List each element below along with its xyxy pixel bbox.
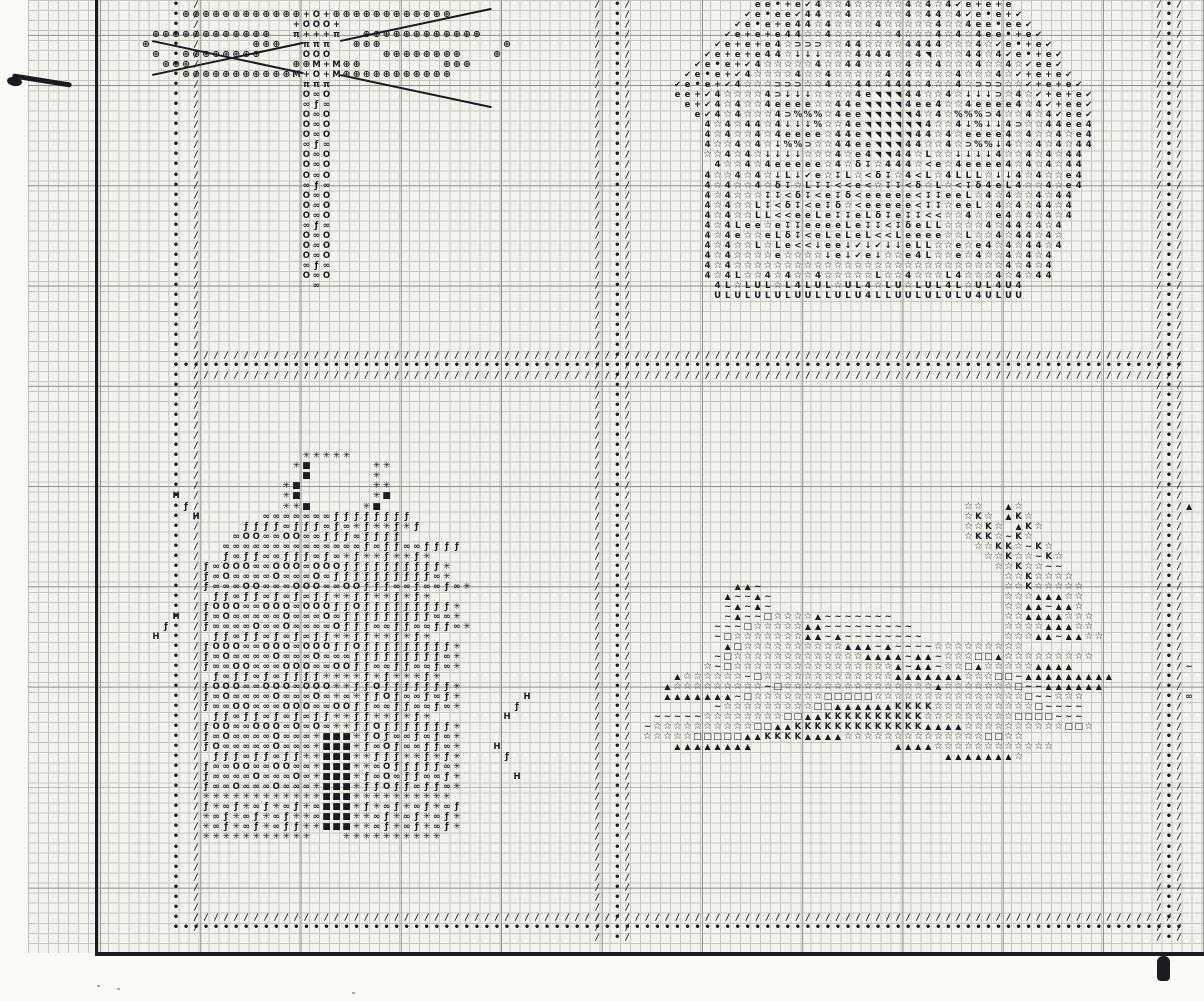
- stitch-cell: H: [191, 512, 202, 523]
- stitch-cell: ▲: [1093, 682, 1104, 693]
- stitch-cell: ☆: [1043, 742, 1054, 753]
- stitch-cell: 4: [1063, 211, 1074, 222]
- stitch-cell: ✳: [431, 832, 442, 843]
- stitch-cell: 4: [1083, 140, 1094, 151]
- stitch-cell: ✳: [451, 702, 462, 713]
- paper-speckle: [117, 988, 120, 990]
- stitch-cell: ☆: [1093, 632, 1104, 643]
- stitch-cell: ⊕: [491, 50, 502, 61]
- stitch-cell: ■: [301, 471, 312, 482]
- stitch-cell: ƒ: [502, 752, 513, 763]
- stitch-cell: ■: [381, 491, 392, 502]
- stitch-cell: 4: [1043, 271, 1054, 282]
- stitch-cell: ⊕: [502, 40, 513, 51]
- stitch-cell: 4: [1073, 181, 1084, 192]
- stitch-cell: H: [512, 772, 523, 783]
- stitch-cell: •: [1174, 923, 1185, 934]
- ink-blob: [1157, 956, 1170, 981]
- stitch-cell: ƒ: [160, 622, 171, 633]
- stitch-cell: U: [1013, 291, 1024, 302]
- stitch-cell: /: [1174, 371, 1185, 382]
- stitch-cell: /: [1174, 933, 1185, 944]
- stitch-cell: ☆: [1083, 652, 1094, 663]
- stitch-cell: ✳: [341, 451, 352, 462]
- stitch-cell: ✳: [451, 662, 462, 673]
- stitch-cell: ~: [1184, 662, 1195, 673]
- stitch-cell: ✳: [451, 822, 462, 833]
- paper-speckle: [97, 985, 100, 987]
- stitch-cell: ƒ: [411, 522, 422, 533]
- stitch-cell: ✳: [381, 461, 392, 472]
- stitch-cell: ☆: [1083, 722, 1094, 733]
- stitch-cell: O: [321, 271, 332, 282]
- stitch-cell: ▲: [742, 742, 753, 753]
- stitch-cell: ☆: [1013, 752, 1024, 763]
- stitch-cell: H: [171, 612, 182, 623]
- scanned-pattern-page: •/•/•/•/•/•/•/•/•/•/•/•/•/•/•/•/•/•/•/•/…: [0, 0, 1204, 1001]
- stitch-cell: ⊕: [441, 70, 452, 81]
- stitch-cell: H: [502, 712, 513, 723]
- stitch-cell: /: [592, 933, 603, 944]
- paper-speckle: [352, 992, 355, 994]
- stitch-cell: ∞: [1184, 692, 1195, 703]
- stitch-cell: ƒ: [451, 542, 462, 553]
- stitch-symbol-cells: •/•/•/•/•/•/•/•/•/•/•/•/•/•/•/•/•/•/•/•/…: [0, 0, 1204, 953]
- stitch-cell: H: [150, 632, 161, 643]
- stitch-cell: ✳: [451, 782, 462, 793]
- stitch-cell: ☆: [1033, 522, 1044, 533]
- stitch-cell: ▲: [1103, 672, 1114, 683]
- stitch-cell: ✳: [301, 832, 312, 843]
- stitch-cell: ✳: [461, 622, 472, 633]
- stitch-cell: ƒ: [512, 702, 523, 713]
- stitch-cell: ⊕: [461, 60, 472, 71]
- stitch-cell: ✳: [461, 582, 472, 593]
- stitch-cell: ⊕: [471, 30, 482, 41]
- stitch-cell: ∞: [311, 281, 322, 292]
- stitch-cell: H: [522, 692, 533, 703]
- stitch-cell: /: [622, 933, 633, 944]
- stitch-cell: ▲: [1184, 502, 1195, 513]
- stitch-cell: 4: [1053, 241, 1064, 252]
